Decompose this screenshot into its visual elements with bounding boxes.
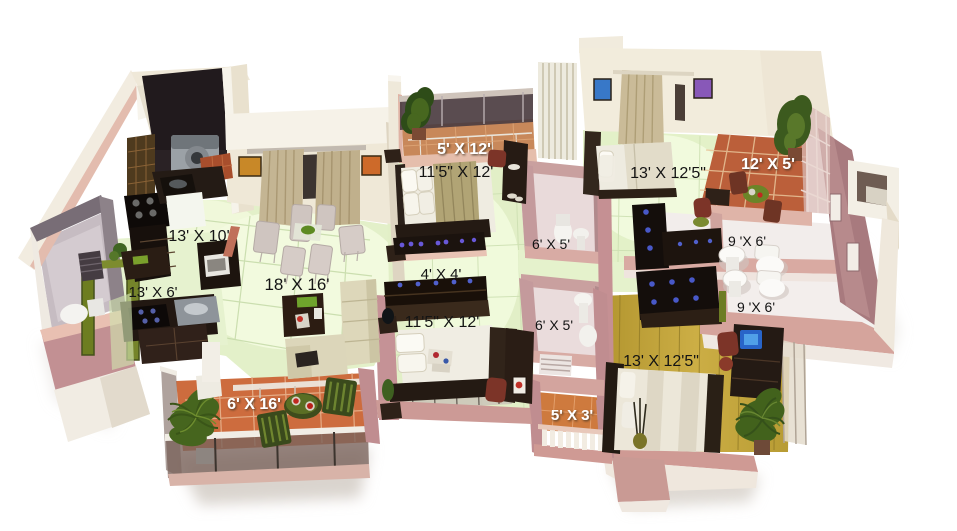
svg-text:12' X 5': 12' X 5' <box>741 156 795 173</box>
svg-text:4' X 4': 4' X 4' <box>421 266 462 283</box>
svg-text:13' X 12'5": 13' X 12'5" <box>630 165 706 182</box>
svg-text:9 'X 6': 9 'X 6' <box>728 233 766 249</box>
svg-text:11'5" X 12': 11'5" X 12' <box>405 314 480 331</box>
svg-text:5' X 3': 5' X 3' <box>551 407 593 424</box>
svg-text:13' X 12'5": 13' X 12'5" <box>623 353 699 370</box>
svg-text:6' X 5': 6' X 5' <box>535 317 573 333</box>
svg-text:9 'X 6': 9 'X 6' <box>737 299 775 315</box>
svg-text:18' X 16': 18' X 16' <box>264 275 329 294</box>
svg-text:13' X 10': 13' X 10' <box>168 228 229 245</box>
svg-text:6' X 5': 6' X 5' <box>532 236 570 252</box>
svg-text:11'5" X 12': 11'5" X 12' <box>419 164 494 181</box>
svg-text:6' X 16': 6' X 16' <box>227 396 281 413</box>
svg-text:5' X 12': 5' X 12' <box>437 141 491 158</box>
svg-text:13' X 6': 13' X 6' <box>128 284 177 301</box>
